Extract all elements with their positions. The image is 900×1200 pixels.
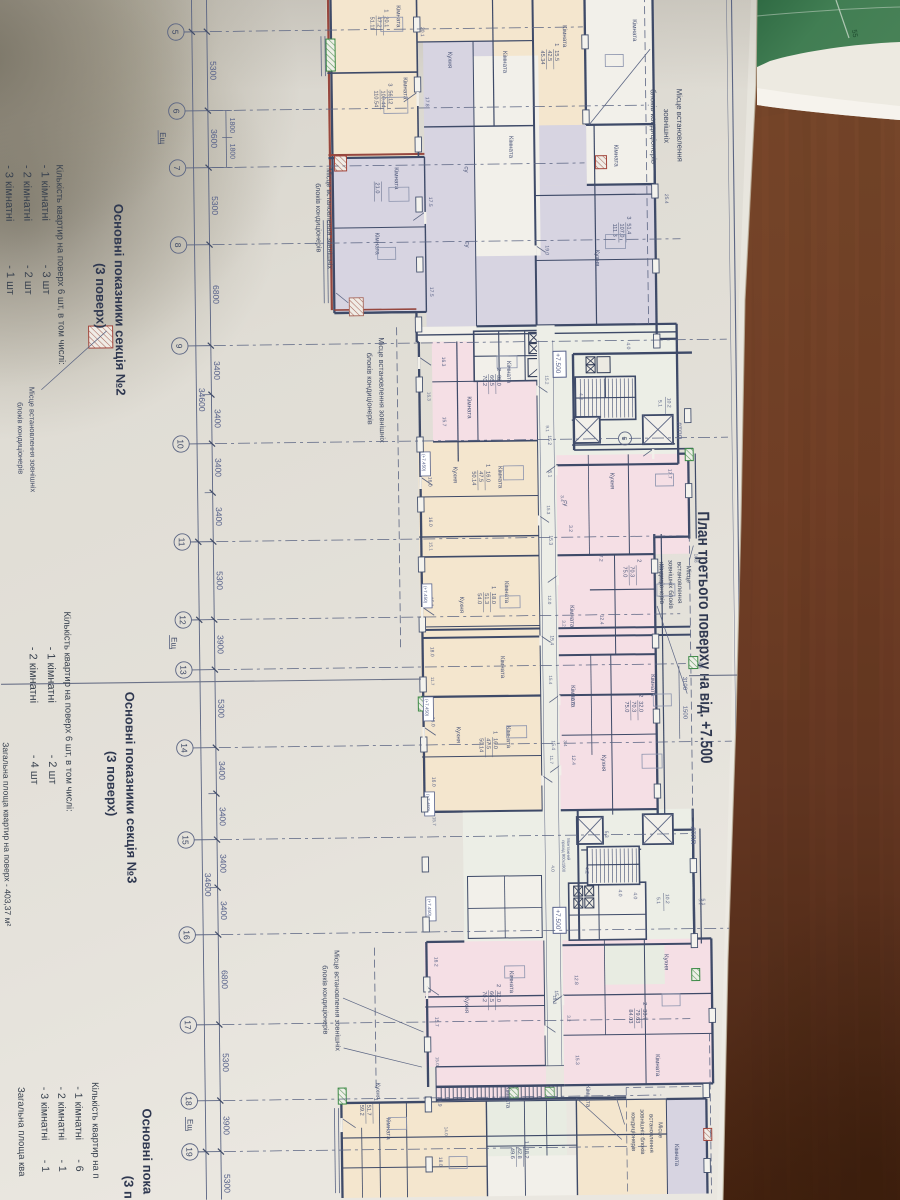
svg-text:84.03: 84.03 [627, 1009, 633, 1023]
svg-text:15.3: 15.3 [574, 1055, 580, 1065]
svg-text:встановлення: встановлення [676, 562, 684, 604]
svg-text:51.7: 51.7 [365, 1105, 371, 1116]
svg-text:- 2 кімнатні: - 2 кімнатні [27, 647, 40, 703]
svg-text:16.2: 16.2 [433, 957, 439, 967]
svg-text:(3 п: (3 п [121, 1176, 136, 1199]
svg-text:- 1 кімнатні: - 1 кімнатні [39, 165, 52, 221]
svg-text:встановлення: встановлення [647, 1114, 653, 1153]
svg-text:(+7.450): (+7.450) [423, 586, 428, 604]
svg-text:Кімната: Кімната [561, 25, 568, 48]
svg-text:2: 2 [495, 368, 501, 371]
svg-text:4.0: 4.0 [617, 889, 623, 896]
svg-text:(+7.450): (+7.450) [424, 699, 429, 717]
svg-text:Основні показники секція №2: Основні показники секція №2 [111, 204, 128, 396]
svg-text:Місце: Місце [657, 1122, 663, 1139]
svg-text:- 2 шт: - 2 шт [46, 755, 58, 785]
svg-text:Кімната: Кімната [568, 605, 575, 628]
svg-text:18.0: 18.0 [429, 647, 435, 657]
svg-text:3400: 3400 [218, 807, 228, 826]
svg-text:Кількість квартир на п: Кількість квартир на п [89, 1082, 101, 1179]
svg-text:Кімната: Кімната [395, 5, 402, 28]
svg-text:17.8: 17.8 [424, 97, 430, 107]
svg-text:16: 16 [182, 930, 192, 940]
svg-text:42.8: 42.8 [516, 1148, 522, 1159]
svg-text:Кухня: Кухня [608, 473, 615, 490]
svg-text:3.4: 3.4 [563, 740, 568, 747]
svg-text:1: 1 [492, 731, 498, 734]
svg-text:5300: 5300 [216, 699, 226, 718]
svg-text:18.2: 18.2 [523, 1148, 529, 1159]
svg-text:12.0: 12.0 [547, 595, 552, 604]
svg-text:3.2: 3.2 [561, 620, 566, 627]
svg-text:- 2 шт: - 2 шт [22, 265, 34, 295]
svg-text:Кімната: Кімната [465, 396, 472, 419]
svg-text:Ещ: Ещ [186, 1119, 195, 1131]
svg-text:1: 1 [490, 586, 496, 589]
svg-text:- 3 кімнатні: - 3 кімнатні [3, 165, 16, 221]
svg-text:Кухня: Кухня [600, 755, 607, 772]
svg-text:4.2: 4.2 [577, 393, 583, 400]
svg-text:15.7: 15.7 [441, 417, 447, 427]
svg-text:14.0: 14.0 [444, 1127, 449, 1136]
svg-text:33.7: 33.7 [641, 1009, 647, 1020]
svg-text:3.2: 3.2 [566, 1015, 571, 1022]
svg-text:1: 1 [553, 43, 559, 46]
svg-text:70.3: 70.3 [630, 701, 636, 712]
svg-text:3400: 3400 [214, 507, 224, 526]
svg-text:12.4: 12.4 [598, 615, 604, 625]
svg-text:5300: 5300 [221, 1053, 231, 1072]
svg-text:су: су [464, 241, 471, 248]
svg-text:4.0: 4.0 [632, 892, 638, 899]
svg-text:3400: 3400 [218, 854, 228, 873]
svg-text:51.3: 51.3 [483, 593, 489, 604]
svg-text:3400: 3400 [219, 901, 229, 920]
svg-text:70.2: 70.2 [481, 991, 487, 1002]
svg-text:Основні пока: Основні пока [139, 1108, 155, 1195]
svg-text:32.0: 32.0 [637, 701, 643, 712]
svg-text:Кімната: Кімната [393, 167, 400, 190]
svg-text:5300: 5300 [222, 1174, 232, 1193]
svg-text:8: 8 [173, 243, 183, 248]
svg-text:Кімната: Кімната [503, 581, 510, 604]
svg-text:12.4: 12.4 [570, 755, 576, 765]
svg-text:ЛТПП: ЛТПП [689, 827, 696, 845]
svg-text:15.4: 15.4 [550, 740, 556, 750]
svg-text:54.0: 54.0 [476, 593, 482, 604]
svg-text:70.3: 70.3 [629, 566, 635, 577]
svg-text:75.0: 75.0 [621, 566, 627, 577]
svg-text:Кухня: Кухня [446, 52, 453, 69]
svg-text:66.5: 66.5 [488, 375, 494, 386]
svg-text:1: 1 [523, 1141, 529, 1144]
svg-text:прохід 900х1900: прохід 900х1900 [561, 840, 566, 873]
svg-text:42.5: 42.5 [546, 50, 552, 61]
svg-text:Кімната: Кімната [612, 144, 619, 167]
svg-text:14: 14 [179, 743, 189, 753]
svg-text:20.1: 20.1 [383, 16, 389, 27]
svg-text:19.0: 19.0 [544, 245, 550, 255]
svg-text:5300: 5300 [208, 61, 218, 80]
svg-text:12.8: 12.8 [573, 975, 579, 985]
svg-text:- 1 шт: - 1 шт [4, 265, 16, 295]
svg-text:9: 9 [174, 344, 184, 349]
svg-text:Місце встановлення зовнішніх: Місце встановлення зовнішніх [377, 337, 387, 443]
svg-text:5: 5 [170, 30, 180, 35]
svg-text:47.5: 47.5 [477, 471, 483, 482]
svg-text:1500: 1500 [681, 706, 687, 720]
svg-text:блоків кондиціонерів: блоків кондиціонерів [365, 353, 375, 425]
svg-text:15.3: 15.3 [547, 535, 553, 545]
svg-text:Кімната: Кімната [673, 1144, 680, 1167]
svg-text:3.4: 3.4 [560, 495, 565, 502]
svg-text:45.34: 45.34 [539, 50, 545, 64]
svg-text:(3 поверх): (3 поверх) [93, 263, 109, 329]
svg-text:блоків кондиціонерів: блоків кондиціонерів [649, 89, 659, 164]
svg-text:1: 1 [372, 1098, 378, 1101]
svg-text:18.0: 18.0 [490, 593, 496, 604]
svg-text:11.7: 11.7 [430, 677, 435, 686]
svg-text:3900: 3900 [215, 635, 225, 654]
svg-text:15.3: 15.3 [546, 505, 551, 514]
svg-text:- 2 кімнатні: - 2 кімнатні [21, 165, 34, 221]
svg-text:79.63: 79.63 [634, 1009, 640, 1023]
svg-text:ЛТПП: ЛТПП [675, 422, 682, 440]
svg-text:Місце встановлення зовнішніх: Місце встановлення зовнішніх [332, 950, 342, 1051]
svg-text:4.0: 4.0 [625, 342, 631, 349]
svg-text:51.4: 51.4 [625, 223, 631, 234]
svg-text:51.11: 51.11 [368, 17, 374, 31]
svg-text:Кімната: Кімната [401, 77, 408, 100]
svg-text:1800: 1800 [228, 118, 235, 134]
svg-text:15.5: 15.5 [553, 50, 559, 61]
svg-text:Місце встановлення зовнішніх: Місце встановлення зовнішніх [27, 387, 37, 493]
svg-text:9.1: 9.1 [545, 425, 550, 432]
svg-text:План третього поверху на від.: План третього поверху на від. +7.500 [694, 511, 715, 763]
svg-text:Кімната: Кімната [505, 361, 512, 384]
svg-text:3: 3 [387, 83, 393, 86]
svg-text:Місце: Місце [685, 566, 693, 584]
svg-text:- 2 кімнатні: - 2 кімнатні [55, 1086, 68, 1140]
svg-text:1800: 1800 [228, 144, 235, 160]
svg-text:34600: 34600 [203, 873, 213, 897]
svg-text:Ещ: Ещ [158, 132, 167, 144]
svg-text:5.1: 5.1 [698, 898, 703, 905]
svg-text:50.14: 50.14 [470, 471, 476, 485]
svg-text:15.4: 15.4 [548, 675, 553, 684]
svg-text:15: 15 [180, 835, 190, 845]
svg-text:(+7.450): (+7.450) [427, 899, 432, 917]
svg-text:2: 2 [637, 694, 643, 697]
svg-text:Кухня: Кухня [455, 727, 462, 744]
svg-text:+7.500: +7.500 [554, 909, 561, 930]
svg-text:Кімната: Кімната [501, 51, 508, 74]
svg-text:3400: 3400 [217, 761, 227, 780]
svg-text:3.2: 3.2 [567, 525, 573, 532]
svg-text:17.5: 17.5 [428, 287, 434, 297]
svg-text:15.0: 15.0 [435, 1057, 440, 1066]
svg-text:3400: 3400 [212, 361, 222, 380]
svg-text:Загальна площа ква: Загальна площа ква [15, 1087, 27, 1177]
svg-text:- 6: - 6 [73, 1159, 85, 1172]
svg-text:Кімната: Кімната [505, 726, 512, 749]
svg-text:Кімната: Кімната [373, 232, 380, 255]
svg-text:16.0: 16.0 [492, 738, 498, 749]
svg-text:3400: 3400 [213, 409, 223, 428]
svg-text:- 1: - 1 [39, 1160, 51, 1173]
svg-text:107.0: 107.0 [618, 223, 624, 237]
svg-text:34600: 34600 [197, 388, 207, 412]
svg-text:кондиціонерів: кондиціонерів [658, 562, 667, 605]
svg-text:2: 2 [495, 984, 501, 987]
svg-text:10.2: 10.2 [665, 398, 671, 408]
svg-text:5.1: 5.1 [657, 400, 663, 407]
svg-text:Кімната: Кімната [631, 19, 638, 42]
svg-text:блоків кондиціонерів: блоків кондиціонерів [314, 183, 324, 252]
svg-text:15.1: 15.1 [428, 542, 433, 551]
svg-text:Основні показники секція №3: Основні показники секція №3 [122, 692, 139, 884]
svg-text:1: 1 [383, 9, 389, 12]
svg-text:Кімната: Кімната [649, 674, 656, 697]
svg-text:зовнішніх блоків: зовнішніх блоків [667, 560, 676, 610]
svg-text:зовнішніх: зовнішніх [662, 109, 671, 143]
svg-text:19: 19 [184, 1147, 194, 1157]
svg-text:110.54: 110.54 [372, 91, 378, 108]
svg-text:Кухня: Кухня [594, 250, 601, 267]
svg-text:Місце встановлення зовнішніх: Місце встановлення зовнішніх [325, 168, 335, 269]
svg-text:21.0: 21.0 [374, 182, 380, 193]
svg-text:3100: 3100 [681, 677, 687, 691]
svg-text:- 1 кімнатні: - 1 кімнатні [45, 647, 58, 703]
svg-text:70.2: 70.2 [481, 375, 487, 386]
svg-text:15.4: 15.4 [548, 635, 554, 645]
svg-text:50.14: 50.14 [478, 738, 484, 752]
svg-text:- 3 шт: - 3 шт [40, 265, 52, 295]
svg-text:32.0: 32.0 [495, 991, 501, 1002]
svg-text:3900: 3900 [221, 1116, 231, 1135]
svg-text:16.0: 16.0 [427, 517, 433, 527]
svg-text:18.0: 18.0 [437, 1157, 443, 1167]
svg-text:16.0: 16.0 [484, 471, 490, 482]
svg-text:Ещ: Ещ [169, 637, 178, 649]
svg-text:5.1: 5.1 [655, 897, 661, 904]
svg-text:2: 2 [636, 559, 642, 562]
svg-text:4.0: 4.0 [550, 865, 555, 872]
svg-text:3.8: 3.8 [697, 661, 703, 668]
svg-text:11: 11 [177, 538, 187, 547]
svg-text:10.9: 10.9 [436, 1097, 442, 1107]
svg-text:55: 55 [850, 29, 858, 38]
svg-text:су: су [463, 166, 470, 173]
svg-text:16.8: 16.8 [693, 554, 698, 563]
svg-text:Кухня: Кухня [662, 954, 669, 971]
svg-text:15.2: 15.2 [546, 435, 552, 445]
svg-text:17.5: 17.5 [427, 197, 433, 207]
svg-text:Місце встановлення: Місце встановлення [675, 89, 685, 162]
svg-text:1: 1 [484, 464, 490, 467]
svg-text:зовнішніх блоків: зовнішніх блоків [638, 1109, 645, 1154]
svg-text:5300: 5300 [215, 571, 225, 590]
svg-text:10: 10 [175, 439, 185, 449]
svg-text:47.5: 47.5 [485, 738, 491, 749]
svg-text:17: 17 [183, 1020, 193, 1030]
svg-text:Кімната: Кімната [499, 656, 506, 679]
svg-text:16.0: 16.0 [430, 777, 436, 787]
svg-text:2: 2 [641, 1002, 647, 1005]
svg-text:Кімната: Кімната [508, 971, 515, 994]
svg-text:49.6: 49.6 [509, 1148, 515, 1159]
svg-text:Кухня: Кухня [463, 996, 470, 1013]
svg-text:3: 3 [625, 216, 631, 219]
svg-text:66.5: 66.5 [488, 991, 494, 1002]
svg-text:7: 7 [172, 166, 182, 171]
svg-text:Кухня: Кухня [451, 467, 458, 484]
svg-text:11.7: 11.7 [549, 755, 554, 764]
svg-text:3600: 3600 [209, 129, 219, 148]
svg-text:75.0: 75.0 [623, 701, 629, 712]
svg-text:6800: 6800 [211, 285, 221, 304]
svg-text:6800: 6800 [220, 970, 230, 989]
svg-text:16.8: 16.8 [569, 695, 575, 705]
svg-text:13: 13 [178, 665, 188, 675]
svg-text:кондиціонерів: кондиціонерів [629, 1112, 635, 1151]
svg-text:4.2: 4.2 [583, 867, 589, 874]
svg-text:10.2: 10.2 [664, 894, 670, 904]
svg-text:25.4: 25.4 [663, 194, 669, 204]
svg-text:блоків кондиціонерів: блоків кондиціонерів [15, 402, 25, 474]
svg-text:18: 18 [184, 1096, 194, 1106]
svg-text:- 1 кімнатні: - 1 кімнатні [72, 1086, 85, 1140]
svg-text:16.3: 16.3 [440, 357, 446, 367]
svg-text:(3 поверх): (3 поверх) [104, 751, 120, 817]
svg-text:3400: 3400 [213, 458, 223, 477]
svg-text:- 3 кімнатні: - 3 кімнатні [38, 1087, 51, 1141]
svg-text:Кімната: Кімната [496, 466, 503, 489]
svg-text:Кімната: Кімната [654, 1054, 661, 1077]
svg-text:16.3: 16.3 [426, 392, 431, 401]
svg-text:12: 12 [178, 615, 188, 625]
svg-text:Кухня: Кухня [458, 596, 465, 613]
svg-text:15.2: 15.2 [544, 375, 549, 384]
svg-text:6: 6 [171, 109, 181, 114]
svg-text:(+7.450): (+7.450) [421, 454, 426, 472]
svg-text:15.7: 15.7 [432, 817, 437, 826]
svg-text:32.0: 32.0 [495, 375, 501, 386]
svg-text:5300: 5300 [210, 196, 220, 215]
svg-text:Кімната: Кімната [507, 136, 514, 159]
svg-text:+7.500: +7.500 [554, 353, 561, 374]
svg-text:- 1: - 1 [56, 1159, 68, 1172]
svg-text:59.2: 59.2 [358, 1105, 364, 1116]
svg-text:блоків кондиціонерів: блоків кондиціонерів [321, 965, 331, 1034]
svg-text:7.2: 7.2 [597, 555, 603, 562]
svg-text:- 4 шт: - 4 шт [28, 755, 40, 785]
